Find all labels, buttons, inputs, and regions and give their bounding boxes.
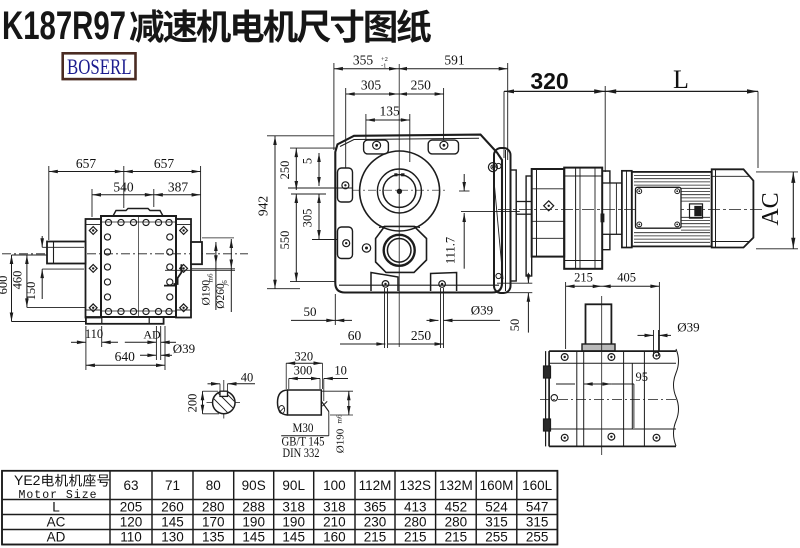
svg-text:145: 145 [161,515,184,530]
svg-text:m6: m6 [207,273,215,282]
svg-text:YE2: YE2 [14,472,41,488]
svg-text:50: 50 [508,319,522,332]
svg-text:130: 130 [161,530,184,545]
svg-text:640: 640 [115,349,136,364]
svg-text:AD: AD [47,530,66,545]
svg-text:DIN 332: DIN 332 [283,446,320,460]
svg-text:150: 150 [24,282,38,301]
svg-text:280: 280 [445,515,468,530]
svg-text:145: 145 [282,530,305,545]
svg-text:160M: 160M [480,478,514,493]
svg-text:Ø260: Ø260 [215,283,227,309]
svg-text:305: 305 [361,78,382,93]
svg-text:170: 170 [202,515,225,530]
svg-text:160L: 160L [522,478,553,493]
svg-text:110: 110 [120,530,142,545]
svg-text:10: 10 [334,364,347,378]
svg-text:m6: m6 [336,414,344,423]
svg-text:60: 60 [348,328,362,343]
svg-text:657: 657 [76,156,97,171]
svg-text:413: 413 [404,500,427,515]
svg-text:145: 145 [242,530,265,545]
svg-text:205: 205 [120,500,143,515]
svg-text:260: 260 [161,500,184,515]
svg-text:405: 405 [617,271,636,285]
svg-text:AC: AC [758,192,784,225]
svg-text:320: 320 [530,68,568,94]
svg-text:230: 230 [364,515,387,530]
svg-text:365: 365 [364,500,387,515]
svg-text:5: 5 [301,158,315,164]
svg-text:100: 100 [323,478,346,493]
svg-text:550: 550 [278,231,292,250]
svg-text:942: 942 [256,196,271,216]
svg-text:300: 300 [294,364,313,378]
svg-text:80: 80 [206,478,221,493]
svg-text:288: 288 [242,500,265,515]
svg-text:315: 315 [485,515,508,530]
svg-text:190: 190 [242,515,265,530]
svg-text:112M: 112M [359,478,392,493]
svg-text:132S: 132S [400,478,432,493]
svg-text:190: 190 [282,515,305,530]
svg-text:215: 215 [445,530,468,545]
svg-text:Ø190: Ø190 [200,280,212,306]
svg-text:305: 305 [301,209,315,228]
svg-text:255: 255 [485,530,508,545]
svg-text:250: 250 [278,161,292,180]
svg-text:215: 215 [404,530,427,545]
svg-text:547: 547 [526,500,549,515]
svg-text:110: 110 [85,327,103,341]
svg-text:452: 452 [445,500,468,515]
svg-text:657: 657 [154,156,175,171]
svg-text:BOSERL: BOSERL [67,54,132,79]
svg-text:318: 318 [323,500,346,515]
svg-text:250: 250 [411,78,432,93]
svg-text:215: 215 [364,530,387,545]
svg-text:40: 40 [241,371,254,385]
svg-text:-1: -1 [381,63,386,70]
svg-text:63: 63 [123,478,138,493]
svg-text:j6: j6 [221,280,229,287]
svg-text:280: 280 [202,500,225,515]
svg-text:Ø39: Ø39 [677,320,699,335]
svg-text:318: 318 [282,500,305,515]
svg-text:120: 120 [120,515,143,530]
svg-text:540: 540 [113,180,134,195]
svg-text:135: 135 [379,104,400,119]
svg-text:250: 250 [411,328,432,343]
svg-text:460: 460 [11,271,25,290]
svg-text:255: 255 [526,530,549,545]
svg-text:355: 355 [353,53,374,68]
svg-text:50: 50 [304,304,317,319]
svg-text:135: 135 [202,530,225,545]
svg-text:591: 591 [444,53,464,68]
svg-text:111.7: 111.7 [444,237,458,264]
svg-text:95: 95 [636,370,649,384]
svg-text:90S: 90S [242,478,266,493]
svg-text:210: 210 [323,515,346,530]
svg-text:320: 320 [294,350,313,364]
svg-text:280: 280 [404,515,427,530]
svg-text:160: 160 [323,530,346,545]
svg-text:M30: M30 [293,421,314,435]
svg-text:600: 600 [0,276,10,295]
svg-text:90L: 90L [282,478,305,493]
svg-text:L: L [52,500,60,515]
svg-text:Ø39: Ø39 [471,303,493,318]
svg-text:387: 387 [168,180,189,195]
svg-text:71: 71 [165,478,180,493]
svg-text:AC: AC [47,515,66,530]
svg-text:315: 315 [526,515,549,530]
svg-text:L: L [673,65,689,94]
svg-text:200: 200 [186,394,200,413]
svg-text:524: 524 [485,500,508,515]
svg-text:K187R97: K187R97 [2,4,126,48]
svg-text:132M: 132M [439,478,473,493]
svg-text:AD: AD [143,328,161,342]
svg-text:Ø190: Ø190 [335,428,347,453]
svg-text:215: 215 [574,271,593,285]
svg-text:Ø39: Ø39 [173,341,195,356]
